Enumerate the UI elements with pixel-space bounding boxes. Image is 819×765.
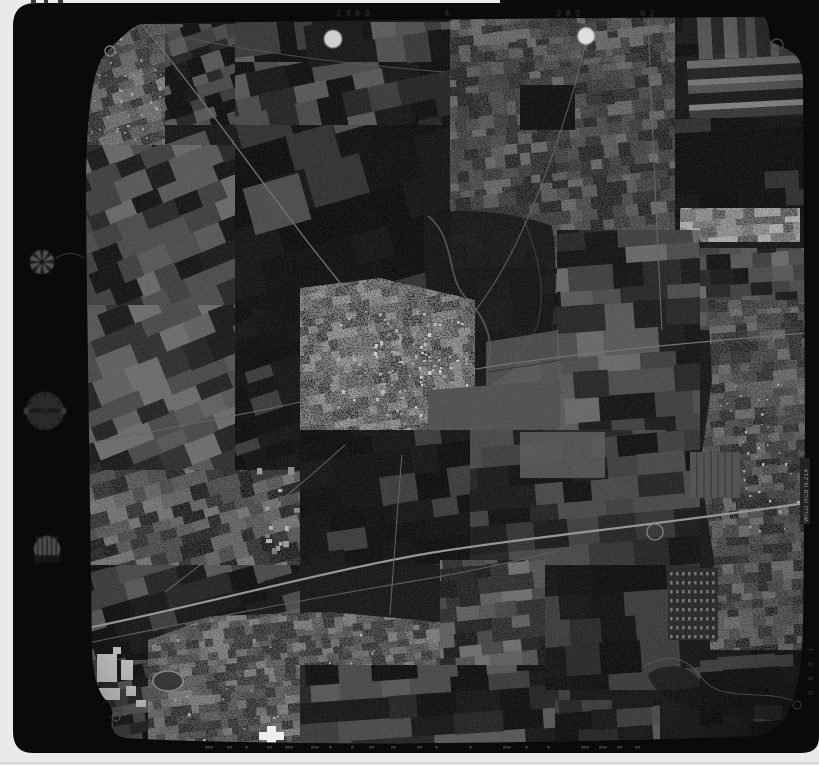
svg-text:WILD RC8 N.214: WILD RC8 N.214 (804, 468, 810, 522)
svg-text:02: 02 (640, 9, 659, 19)
svg-text:2383: 2383 (336, 9, 374, 19)
svg-text:0 0 8 1: 0 0 8 1 (808, 645, 816, 695)
svg-text:283: 283 (556, 9, 584, 19)
svg-text:4: 4 (444, 9, 453, 19)
